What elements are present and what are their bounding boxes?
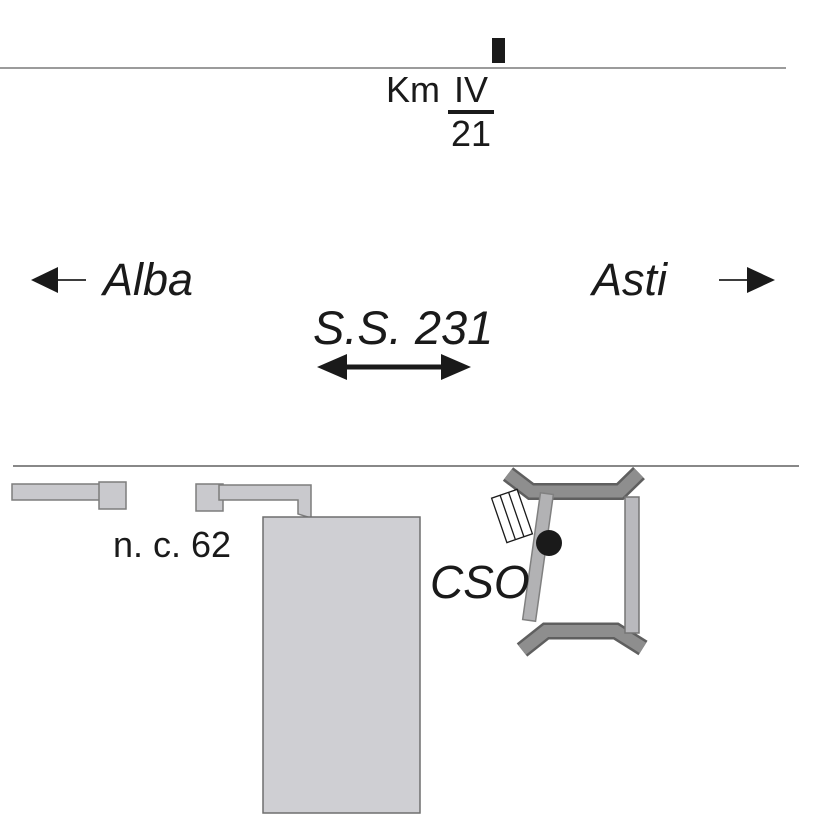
house-number-label: n. c. 62 [113, 527, 231, 563]
km-tick-mark [492, 38, 505, 63]
direction-west-label: Alba [103, 257, 193, 302]
km-fraction-numerator: IV [448, 72, 494, 114]
west-direction-arrow-icon [31, 267, 86, 293]
km-fraction-denominator: 21 [451, 114, 491, 152]
west-driveway [12, 482, 126, 509]
point-marker-dot [536, 530, 562, 556]
cso-label: CSO [430, 559, 530, 605]
direction-east-label: Asti [592, 257, 667, 302]
east-direction-arrow-icon [719, 267, 775, 293]
km-marker-label: Km IV 21 [386, 72, 494, 152]
road-site-sketch: Km IV 21 Alba Asti S.S. 231 n. c. 62 CSO [0, 0, 829, 827]
km-fraction: IV 21 [448, 72, 494, 152]
east-driveway [196, 484, 311, 518]
road-double-arrow-icon [317, 354, 471, 380]
cso-top-wall [508, 473, 639, 492]
cso-bottom-wall [522, 631, 643, 650]
road-name-label: S.S. 231 [313, 304, 493, 351]
cso-right-bar [625, 497, 639, 633]
km-prefix: Km [386, 72, 440, 108]
main-building [263, 517, 420, 813]
